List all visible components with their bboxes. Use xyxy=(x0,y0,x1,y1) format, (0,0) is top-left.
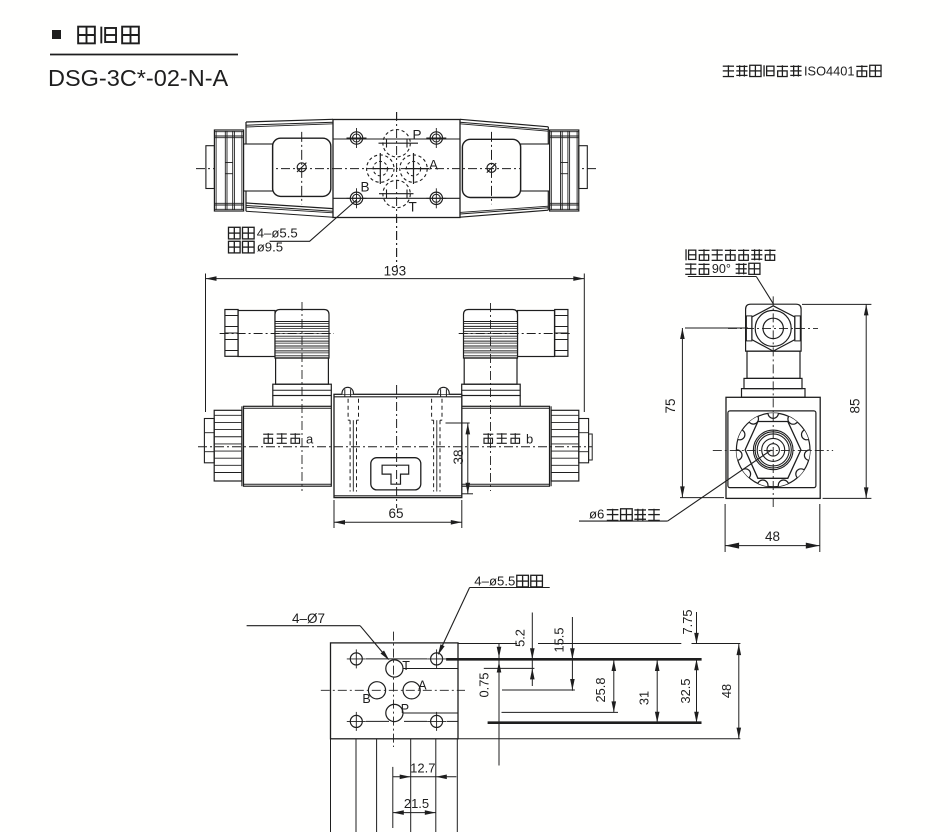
svg-text:ø6: ø6 xyxy=(589,507,604,522)
svg-text:4–ø5.5: 4–ø5.5 xyxy=(474,574,515,589)
svg-text:T: T xyxy=(402,659,410,673)
svg-text:38: 38 xyxy=(451,449,466,464)
svg-text:32.5: 32.5 xyxy=(678,679,693,704)
svg-text:T: T xyxy=(409,200,417,215)
svg-text:A: A xyxy=(418,679,427,693)
svg-text:P: P xyxy=(413,128,422,143)
svg-text:B: B xyxy=(361,180,370,195)
svg-text:a: a xyxy=(306,432,314,447)
svg-text:ø9.5: ø9.5 xyxy=(257,240,283,255)
svg-text:P: P xyxy=(401,702,409,716)
svg-text:A: A xyxy=(429,158,438,173)
svg-text:12.7: 12.7 xyxy=(410,761,435,776)
svg-text:15.5: 15.5 xyxy=(552,628,567,653)
svg-text:48: 48 xyxy=(765,529,780,544)
svg-text:75: 75 xyxy=(663,398,678,413)
svg-text:90°: 90° xyxy=(712,262,731,276)
svg-text:b: b xyxy=(526,432,533,447)
svg-text:85: 85 xyxy=(848,398,863,413)
svg-text:31: 31 xyxy=(637,691,652,705)
svg-text:21.5: 21.5 xyxy=(404,796,429,811)
svg-text:4–ø5.5: 4–ø5.5 xyxy=(257,226,298,241)
svg-text:5.2: 5.2 xyxy=(513,629,528,647)
svg-text:0.75: 0.75 xyxy=(477,673,492,698)
svg-text:B: B xyxy=(362,692,370,706)
svg-text:25.8: 25.8 xyxy=(593,678,608,703)
svg-text:193: 193 xyxy=(384,264,407,279)
svg-text:DSG-3C*-02-N-A: DSG-3C*-02-N-A xyxy=(48,65,229,91)
svg-text:48: 48 xyxy=(719,684,734,698)
svg-text:65: 65 xyxy=(388,506,403,521)
svg-text:7.75: 7.75 xyxy=(680,610,695,635)
svg-text:4–Ø7: 4–Ø7 xyxy=(292,611,325,626)
svg-text:ISO4401: ISO4401 xyxy=(804,63,855,78)
